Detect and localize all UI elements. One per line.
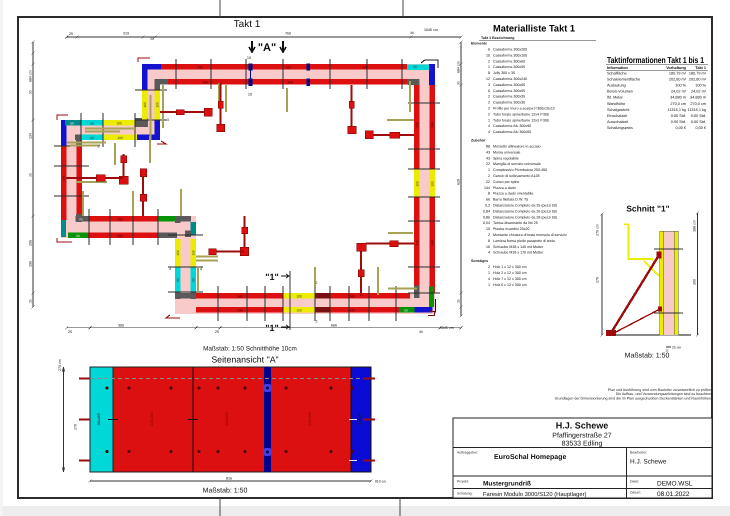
svg-text:2: 2 [488,95,490,99]
svg-text:270 cm: 270 cm [58,359,62,371]
svg-text:255: 255 [62,175,66,181]
svg-text:65x300: 65x300 [97,413,101,425]
svg-text:Lamiera ferma piede parapetto: Lamiera ferma piede parapetto di testa [493,239,555,243]
svg-text:Takt 1 Bezeichnung: Takt 1 Bezeichnung [481,36,514,40]
svg-text:Zubehör: Zubehör [471,139,486,143]
svg-text:270 cm: 270 cm [596,224,600,236]
svg-text:240: 240 [430,122,434,128]
svg-text:25: 25 [29,299,33,303]
svg-text:1: 1 [488,118,490,122]
svg-text:Cassaforma 300x30: Cassaforma 300x30 [493,101,525,105]
svg-text:Maniglia di servizio universal: Maniglia di servizio universale [493,162,541,166]
svg-text:Cassaforma 300x200: Cassaforma 300x200 [493,48,527,52]
svg-text:Schnitt "1": Schnitt "1" [626,204,669,214]
svg-text:H.J. Schewe: H.J. Schewe [556,421,609,431]
svg-text:24,02 m³: 24,02 m³ [691,90,707,94]
svg-text:100: 100 [430,181,434,187]
svg-text:Holz 2 x 12 x 300 cm: Holz 2 x 12 x 300 cm [493,271,527,275]
svg-text:Barra filettata D.W. 75: Barra filettata D.W. 75 [493,198,528,202]
svg-text:43: 43 [486,150,490,154]
svg-text:10: 10 [486,53,490,57]
svg-text:200x300: 200x300 [225,412,229,426]
svg-text:240: 240 [349,295,355,299]
svg-text:EuroSchal Homepage: EuroSchal Homepage [494,453,566,461]
svg-text:60: 60 [90,122,94,126]
svg-text:55x300: 55x300 [358,413,362,425]
svg-text:Materialliste Takt 1: Materialliste Takt 1 [493,24,576,35]
svg-text:4: 4 [488,130,490,134]
svg-text:2: 2 [488,174,490,178]
svg-text:255: 255 [29,240,33,246]
svg-text:Morsetto allineatore in acciai: Morsetto allineatore in acciaio [493,145,541,149]
svg-text:240: 240 [349,309,355,313]
svg-text:0,54: 0,54 [483,221,490,225]
svg-text:0,00 €: 0,00 € [695,126,706,130]
svg-text:11316,1 kg: 11316,1 kg [667,108,686,112]
svg-text:100: 100 [155,102,159,108]
svg-text:Profilo per muro a scarpa l=30: Profilo per muro a scarpa l=300x10x12 [493,107,555,111]
svg-text:Schraube M18 x 170 mit Mutter: Schraube M18 x 170 mit Mutter [493,251,544,255]
svg-text:12: 12 [486,77,490,81]
svg-text:6: 6 [488,48,490,52]
svg-text:1045 cm: 1045 cm [424,28,438,32]
svg-text:Pfaffingerstraße 27: Pfaffingerstraße 27 [552,432,612,440]
svg-text:2: 2 [488,59,490,63]
svg-text:Auftraggeber:: Auftraggeber: [457,451,478,455]
svg-text:Piazza a dado orientabile: Piazza a dado orientabile [493,192,533,196]
svg-text:Schalungspreis: Schalungspreis [607,126,633,130]
svg-text:629: 629 [457,179,461,185]
svg-text:Takt 1: Takt 1 [695,66,706,70]
svg-text:0,00 €: 0,00 € [675,126,686,130]
svg-text:60: 60 [404,309,408,313]
svg-text:Morsa universale: Morsa universale [493,150,520,154]
svg-text:Vorhaltung: Vorhaltung [666,66,686,70]
svg-text:Complessivo Piombatore 250-450: Complessivo Piombatore 250-450 [493,168,547,172]
svg-text:200: 200 [285,65,291,69]
svg-text:Cassaforma 300x35: Cassaforma 300x35 [493,95,525,99]
svg-text:100 %: 100 % [675,84,686,88]
svg-text:Beton-Volumen: Beton-Volumen [607,90,633,94]
svg-text:25: 25 [69,32,73,36]
svg-text:240: 240 [287,80,293,84]
svg-text:Cassaforma Alu 300x50: Cassaforma Alu 300x50 [493,130,531,134]
svg-text:200: 200 [117,234,123,238]
svg-text:lfd. Meter: lfd. Meter [607,96,624,100]
svg-text:4: 4 [169,267,171,271]
svg-text:1: 1 [488,283,490,287]
svg-text:0:00 Std.: 0:00 Std. [691,120,706,124]
svg-text:100: 100 [415,181,419,187]
svg-text:816: 816 [226,477,232,481]
svg-text:Elemente: Elemente [471,42,487,46]
svg-text:100: 100 [296,295,302,299]
svg-text:240: 240 [362,65,368,69]
svg-text:Piastra ricambio 20x20: Piastra ricambio 20x20 [493,227,530,231]
svg-text:Cassaforma 300x240: Cassaforma 300x240 [493,77,527,81]
svg-text:20: 20 [29,173,33,177]
svg-text:22: 22 [486,162,490,166]
svg-text:66: 66 [486,198,490,202]
svg-text:20: 20 [150,37,154,41]
svg-text:100: 100 [116,122,122,126]
svg-text:25: 25 [68,330,72,334]
svg-text:60: 60 [176,278,180,282]
svg-text:4: 4 [200,267,202,271]
svg-text:22: 22 [486,180,490,184]
svg-text:100: 100 [296,309,302,313]
svg-text:"A": "A" [258,42,276,54]
svg-text:10: 10 [247,56,251,60]
svg-text:240: 240 [202,80,208,84]
svg-text:Tubo forato spine/barre 12x4 l: Tubo forato spine/barre 12x4 l=300 [493,112,549,116]
svg-text:144: 144 [484,186,490,190]
svg-text:Jolly 300 x 35: Jolly 300 x 35 [493,71,515,75]
svg-text:30: 30 [410,31,414,35]
svg-text:100: 100 [117,136,123,140]
svg-text:0:00 Std.: 0:00 Std. [691,114,706,118]
svg-text:Distanziatore Completo da 26 (: Distanziatore Completo da 26 (pezzi 50) [493,209,557,213]
svg-text:2: 2 [488,112,490,116]
svg-text:388 cm: 388 cm [693,220,697,232]
svg-text:684 cm: 684 cm [457,61,461,73]
svg-text:25: 25 [457,299,461,303]
svg-text:810 cm: 810 cm [375,480,386,484]
svg-text:Schraube M18 x 146 mit Mutter: Schraube M18 x 146 mit Mutter [493,245,544,249]
svg-text:Holz 1 x 12 x 300 cm: Holz 1 x 12 x 300 cm [493,265,527,269]
svg-text:240: 240 [430,240,434,246]
svg-text:55: 55 [413,65,417,69]
svg-text:Tanica disarmante da litri 25: Tanica disarmante da litri 25 [493,221,538,225]
svg-text:Takt 1: Takt 1 [234,19,261,30]
svg-text:80: 80 [79,218,83,222]
svg-text:30: 30 [29,90,33,94]
svg-text:Maßstab: 1:50: Maßstab: 1:50 [203,487,248,495]
svg-text:30: 30 [457,81,461,85]
svg-text:30: 30 [419,330,423,334]
svg-text:0,2: 0,2 [485,204,490,208]
svg-text:60: 60 [76,234,80,238]
svg-text:Piazza a dado: Piazza a dado [493,186,516,190]
svg-text:Cuneo per spine: Cuneo per spine [493,180,519,184]
svg-text:88: 88 [486,145,490,149]
svg-text:134: 134 [29,133,33,139]
svg-text:2: 2 [316,281,318,285]
svg-text:Cassaforma 300x55: Cassaforma 300x55 [493,89,525,93]
svg-text:202,80 m²: 202,80 m² [669,78,687,82]
svg-text:Cassaforma 300x65: Cassaforma 300x65 [493,83,525,87]
svg-text:Seitenansicht "A": Seitenansicht "A" [211,355,278,365]
svg-text:Holz 7 x 12 x 300 cm: Holz 7 x 12 x 300 cm [493,277,527,281]
svg-text:760: 760 [285,32,291,36]
svg-text:1: 1 [488,168,490,172]
svg-text:Datum:: Datum: [630,491,641,495]
svg-text:2: 2 [488,107,490,111]
svg-text:08.01.2022: 08.01.2022 [657,491,690,498]
svg-text:83533 Edling: 83533 Edling [562,440,603,448]
svg-text:Mustergrundriß: Mustergrundriß [483,481,531,488]
svg-text:25: 25 [215,330,219,334]
svg-text:Information: Information [607,66,629,70]
svg-text:0,86: 0,86 [483,215,490,219]
svg-text:240: 240 [237,295,243,299]
svg-text:Schalfläche: Schalfläche [607,72,627,76]
svg-text:Cassaforma 300x55: Cassaforma 300x55 [493,65,525,69]
svg-text:Datei:: Datei: [630,480,639,484]
svg-text:Wandhöhe: Wandhöhe [607,102,625,106]
svg-text:Auslastung: Auslastung [607,84,626,88]
svg-text:684 cm: 684 cm [29,70,33,82]
svg-text:H.J. Schewe: H.J. Schewe [630,459,667,466]
svg-text:Spina regolabile: Spina regolabile [493,156,519,160]
svg-text:Taktinformationen Takt 1 bis: Taktinformationen Takt 1 bis 1 [607,55,704,65]
svg-text:240: 240 [415,122,419,128]
svg-text:Distanziatore Completo da 28 (: Distanziatore Completo da 28 (pezzi 50) [493,215,557,219]
svg-text:1045 cm: 1045 cm [440,326,454,330]
svg-text:3: 3 [167,118,169,122]
svg-text:100: 100 [191,250,195,256]
svg-text:24,02 m³: 24,02 m³ [671,90,687,94]
svg-text:Ausschalzeit: Ausschalzeit [607,120,629,124]
svg-text:8: 8 [488,239,490,243]
svg-text:2: 2 [488,101,490,105]
svg-text:8: 8 [488,71,490,75]
svg-text:Schalgewicht: Schalgewicht [607,108,630,112]
svg-text:3: 3 [488,83,490,87]
svg-text:240: 240 [197,65,203,69]
svg-text:270,0 cm: 270,0 cm [690,102,706,106]
svg-text:16: 16 [486,245,490,249]
svg-text:Montante chiusura di testa men: Montante chiusura di testa mensola di se… [493,233,567,237]
svg-text:300: 300 [693,279,697,285]
svg-text:240: 240 [237,309,243,313]
svg-text:270: 270 [596,277,600,283]
svg-text:2: 2 [98,145,100,149]
svg-text:1: 1 [488,271,490,275]
svg-text:0:00 Std.: 0:00 Std. [671,120,686,124]
svg-text:50: 50 [70,122,74,126]
svg-text:100 %: 100 % [695,84,706,88]
svg-text:Einschalzeit: Einschalzeit [607,114,628,118]
svg-text:219: 219 [123,32,129,36]
svg-text:Maßstab: 1:50 Schnitthöhe: Maßstab: 1:50 Schnitthöhe 10cm [203,346,297,353]
svg-text:2: 2 [488,233,490,237]
svg-text:10: 10 [486,227,490,231]
svg-text:0:00 Std.: 0:00 Std. [671,114,686,118]
svg-text:270: 270 [74,424,78,430]
svg-text:0,84: 0,84 [483,209,490,213]
svg-text:Bearbeiter:: Bearbeiter: [630,451,647,455]
svg-text:DEMO.WSL: DEMO.WSL [657,481,693,488]
svg-text:200: 200 [117,218,123,222]
svg-text:240x300: 240x300 [150,412,154,426]
svg-text:180,79 m²: 180,79 m² [689,72,707,76]
svg-text:34,880 m: 34,880 m [690,96,706,100]
svg-text:Cassaforma Alu 300x90: Cassaforma Alu 300x90 [493,124,531,128]
svg-text:240: 240 [415,240,419,246]
svg-text:4: 4 [488,277,490,281]
svg-text:Grundlagen der Dimensionierung: Grundlagen der Dimensionierung sind die … [555,396,712,400]
svg-text:34,880 m: 34,880 m [670,96,686,100]
svg-text:270,0 cm: 270,0 cm [670,102,686,106]
svg-text:Faresin Modulo 3000/S120 (Haup: Faresin Modulo 3000/S120 (Hauptlager) [483,491,587,498]
svg-text:Schalung:: Schalung: [457,492,473,496]
svg-text:100: 100 [176,250,180,256]
svg-text:Distanziatore Completo da 25 (: Distanziatore Completo da 25 (pezzi 50) [493,204,557,208]
svg-text:Maßstab: 1:50: Maßstab: 1:50 [625,352,670,360]
svg-text:"1": "1" [265,272,279,282]
svg-text:8: 8 [488,192,490,196]
svg-text:180,79 m²: 180,79 m² [669,72,687,76]
svg-text:Schalelementfläche: Schalelementfläche [607,78,640,82]
svg-text:4: 4 [488,251,490,255]
svg-text:240x300: 240x300 [308,412,312,426]
svg-text:6: 6 [488,89,490,93]
svg-text:Sonstiges: Sonstiges [471,259,488,263]
svg-text:Tubo forato spine/barre 12x3 l: Tubo forato spine/barre 12x3 l=300 [493,118,549,122]
svg-text:60: 60 [191,278,195,282]
svg-text:2: 2 [488,265,490,269]
svg-text:Cassaforma 300x100: Cassaforma 300x100 [493,53,527,57]
svg-text:4: 4 [488,124,490,128]
svg-text:2: 2 [316,320,318,324]
svg-text:Gancio di sollevamento A128: Gancio di sollevamento A128 [493,174,540,178]
svg-text:300: 300 [118,323,124,327]
svg-text:25 cm: 25 cm [672,346,681,350]
svg-text:11316,1 kg: 11316,1 kg [687,108,706,112]
svg-text:666: 666 [331,323,337,327]
svg-text:Projekt:: Projekt: [457,480,469,484]
svg-text:100: 100 [143,102,147,108]
svg-text:195: 195 [29,261,33,267]
svg-text:43: 43 [486,156,490,160]
svg-text:60: 60 [90,136,94,140]
svg-text:202,80 m²: 202,80 m² [689,78,707,82]
svg-text:Holz 6 x 12 x 300 cm: Holz 6 x 12 x 300 cm [493,283,527,287]
svg-text:1: 1 [488,65,490,69]
svg-text:10: 10 [248,93,252,97]
svg-text:Cassaforma 300x60: Cassaforma 300x60 [493,59,525,63]
